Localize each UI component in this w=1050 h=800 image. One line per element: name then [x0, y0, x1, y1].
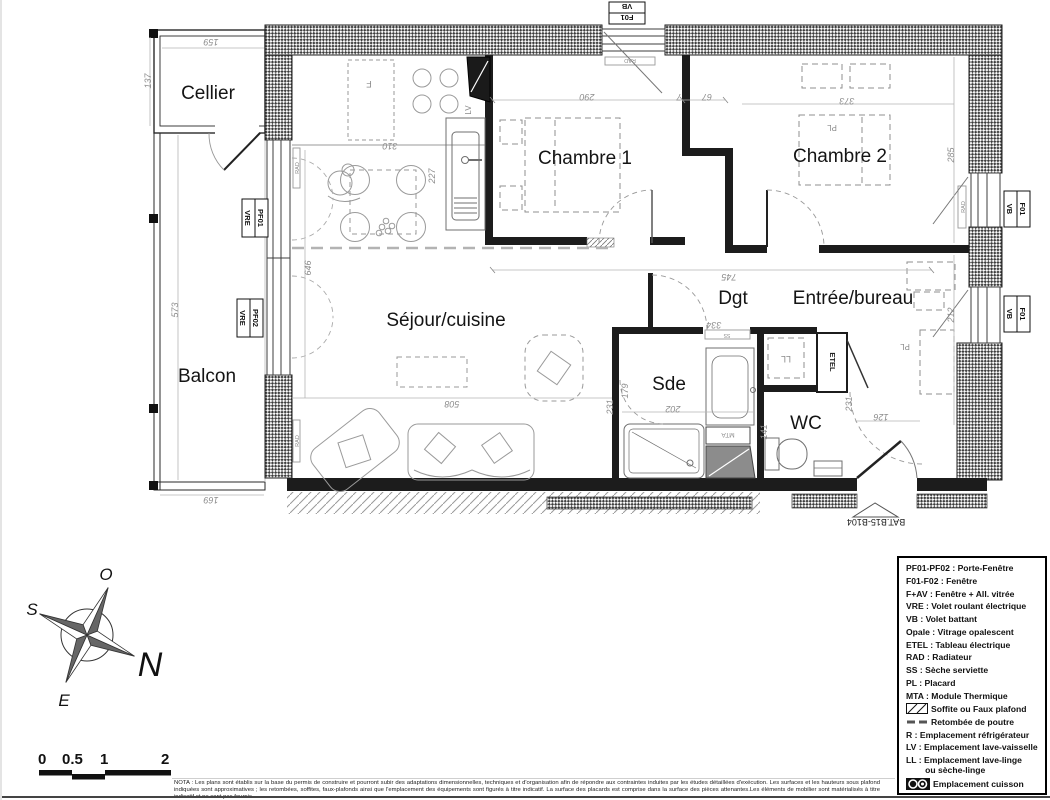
rad-label: RAD	[295, 435, 301, 447]
tag-text: F01	[621, 13, 634, 22]
scale-label-0: 0	[38, 751, 46, 768]
pf02-door-arcs	[292, 276, 333, 358]
dimension-label: 285	[946, 147, 956, 164]
tag-f01-vb-a: F01 VB	[1004, 191, 1030, 227]
dgt-door-arc	[652, 275, 707, 330]
dimension-label: 202	[665, 404, 681, 414]
legend-text: Opale : Vitrage opalescent	[906, 627, 1014, 637]
tag-pf02-vre: PF02 VRE	[237, 299, 263, 337]
room-label-sde: Sde	[652, 374, 686, 395]
cooktop-burner	[413, 69, 431, 87]
floor-plan-svg: 159 137 573 169 646 310 227 290 7 67 373…	[2, 0, 1050, 545]
legend-item: RAD : Radiateur	[906, 652, 1042, 662]
tag-text: PF02	[251, 309, 260, 327]
pillow	[482, 433, 513, 464]
dimension-label: 373	[839, 96, 854, 106]
toilet	[765, 438, 807, 470]
legend-text: Retombée de poutre	[931, 717, 1014, 727]
bottom-border	[2, 796, 1050, 798]
dimension-label: 231	[605, 399, 615, 415]
nightstand	[500, 120, 522, 144]
legend-item: LV : Emplacement lave-vaisselle	[906, 742, 1042, 752]
compass-south-label: S	[26, 600, 38, 619]
legend-item: ETEL : Tableau électrique	[906, 640, 1042, 650]
legend-item: LL : Emplacement lave-linge ou sèche-lin…	[906, 755, 1042, 775]
cellier-door-arc	[209, 133, 224, 170]
tag-text: VRE	[238, 310, 247, 325]
dimension-label: 141	[759, 424, 769, 439]
interior-walls	[287, 55, 987, 491]
legend-item: MTA : Module Thermique	[906, 691, 1042, 701]
cooktop-burner	[440, 95, 458, 113]
chair	[397, 213, 426, 242]
chair	[397, 166, 426, 195]
dimension-label: 179	[620, 383, 630, 398]
legend-item: Soffite ou Faux plafond	[906, 703, 1042, 714]
desk-chair	[914, 292, 944, 310]
compass-east-label: E	[58, 691, 70, 710]
legend-item: Retombée de poutre	[906, 717, 1042, 727]
floor-plan: 159 137 573 169 646 310 227 290 7 67 373…	[2, 0, 1050, 545]
legend-text: ETEL : Tableau électrique	[906, 640, 1010, 650]
dimension-label: 212	[946, 307, 956, 323]
chambre1-door-arc	[599, 190, 652, 243]
column-mark	[149, 481, 158, 490]
divider	[172, 778, 895, 779]
cellier-door-leaf	[224, 133, 260, 170]
tag-f01-vb-b: F01 VB	[1004, 296, 1030, 332]
dimension-label: 290	[579, 92, 595, 102]
room-label-dgt: Dgt	[718, 288, 748, 309]
windows	[267, 29, 1000, 375]
compass-star	[40, 588, 135, 683]
living-furniture	[306, 335, 583, 496]
dimension-label: 67	[701, 92, 712, 102]
tag-text: PF01	[256, 209, 265, 227]
room-label-chambre2: Chambre 2	[793, 146, 887, 167]
room-label-sejour: Séjour/cuisine	[386, 310, 505, 331]
legend-text: LL : Emplacement lave-linge ou sèche-lin…	[906, 755, 1022, 775]
legend-item: SS : Sèche serviette	[906, 665, 1042, 675]
tag-pf01-vre: PF01 VRE	[242, 199, 268, 237]
nightstand	[500, 186, 522, 210]
tag-top-vb-f01: VB F01	[609, 2, 645, 24]
pillow	[537, 351, 570, 384]
legend-item: PL : Placard	[906, 678, 1042, 688]
closet	[802, 64, 842, 88]
legend: PF01-PF02 : Porte-Fenêtre F01-F02 : Fenê…	[897, 556, 1047, 795]
soffit-hatch-icon	[906, 703, 928, 714]
shower	[624, 424, 704, 478]
dimension-label: 137	[143, 73, 153, 89]
radiators	[293, 57, 966, 462]
scale-label-2: 2	[161, 751, 169, 768]
exterior-ground	[287, 492, 987, 517]
dimension-label: 508	[444, 399, 459, 409]
room-label-balcon: Balcon	[178, 366, 236, 387]
page: 159 137 573 169 646 310 227 290 7 67 373…	[0, 0, 1050, 800]
rad-label: RAD	[624, 57, 636, 63]
tag-text: VRE	[243, 210, 252, 225]
beam-dash-icon	[906, 718, 928, 726]
room-label-entree: Entrée/bureau	[793, 288, 913, 309]
etel-label: ETEL	[828, 352, 837, 372]
scale-label-05: 0.5	[62, 751, 83, 768]
closet	[850, 64, 890, 88]
dimension-label: 7	[676, 92, 682, 102]
legend-item: VRE : Volet roulant électrique	[906, 601, 1042, 611]
dimension-label: 646	[303, 260, 313, 275]
scale-bar-svg: 0 0.5 1 2	[14, 742, 189, 792]
tag-text: VB	[1005, 204, 1014, 215]
building-ref: BAT.B15-B104	[847, 517, 905, 527]
column-mark	[149, 29, 158, 38]
legend-text: LV : Emplacement lave-vaisselle	[906, 742, 1038, 752]
legend-text: F01-F02 : Fenêtre	[906, 576, 977, 586]
legend-text: VRE : Volet roulant électrique	[906, 601, 1026, 611]
room-label-chambre1: Chambre 1	[538, 148, 632, 169]
pillow	[425, 433, 456, 464]
compass-rose: O S E N	[17, 558, 187, 723]
compass-north-label: N	[138, 646, 163, 684]
pl-label: PL	[900, 342, 910, 351]
legend-item: Emplacement cuisson	[906, 778, 1042, 790]
room-label-wc: WC	[790, 413, 822, 434]
desk	[907, 262, 955, 290]
legend-item: R : Emplacement réfrigérateur	[906, 730, 1042, 740]
dimension-label: 126	[873, 412, 888, 422]
window-pf01	[267, 140, 290, 258]
etel-door-leaf	[847, 340, 868, 388]
rad-label: RAD	[295, 162, 301, 174]
legend-text: F+AV : Fenêtre + All. vitrée	[906, 589, 1014, 599]
dimension-label: 227	[427, 168, 437, 185]
chambre2-door-arc	[767, 190, 824, 247]
legend-item: F+AV : Fenêtre + All. vitrée	[906, 589, 1042, 599]
dimension-label: 159	[203, 37, 218, 47]
dimension-label: 231	[844, 396, 854, 412]
mta-label: MTA	[721, 431, 735, 438]
column-mark	[149, 404, 158, 413]
scale-bar: 0 0.5 1 2	[14, 742, 189, 792]
legend-item: PF01-PF02 : Porte-Fenêtre	[906, 563, 1042, 573]
window-right-f01-a	[971, 173, 1000, 227]
dimension-label: 573	[170, 302, 180, 317]
dimension-label: 745	[721, 272, 737, 282]
legend-item: Opale : Vitrage opalescent	[906, 627, 1042, 637]
person-figure	[328, 164, 360, 202]
cooktop-burner	[440, 69, 458, 87]
tag-text: VB	[1005, 309, 1014, 320]
legend-text: PF01-PF02 : Porte-Fenêtre	[906, 563, 1013, 573]
pl-label: PL	[827, 123, 837, 132]
legend-text: Emplacement cuisson	[933, 779, 1024, 789]
chair	[341, 213, 370, 242]
ss-label: SS	[723, 332, 730, 338]
window-pf02	[267, 258, 290, 375]
armchair-pouf	[525, 335, 583, 401]
rad-label: RAD	[961, 201, 967, 213]
tag-text: F01	[1018, 203, 1027, 216]
plant-decor	[376, 218, 395, 236]
lv-label: LV	[464, 105, 473, 115]
window-right-f01-b	[971, 287, 1000, 343]
scale-segment	[105, 770, 171, 776]
compass-svg: O S E N	[17, 558, 187, 723]
fridge-label: F	[366, 79, 372, 89]
scale-segment	[72, 774, 105, 780]
closet-pl	[920, 330, 954, 394]
dimension-label: 169	[203, 495, 218, 505]
door-threshold	[587, 238, 614, 247]
dimension-label: 334	[706, 320, 721, 330]
tag-text: VB	[621, 2, 632, 11]
entry-arrow	[853, 503, 898, 517]
legend-text: Soffite ou Faux plafond	[931, 704, 1026, 714]
tag-text: F01	[1018, 308, 1027, 321]
coffee-table	[397, 357, 467, 387]
dining-furniture	[328, 164, 426, 242]
kitchen-sink	[446, 118, 485, 230]
legend-text: VB : Volet battant	[906, 614, 977, 624]
cooktop-icon	[906, 778, 930, 790]
doors	[292, 32, 968, 478]
legend-item: F01-F02 : Fenêtre	[906, 576, 1042, 586]
scale-label-1: 1	[100, 751, 108, 768]
legend-text: SS : Sèche serviette	[906, 665, 988, 675]
towel-radiator	[814, 461, 842, 476]
entry-door-leaf	[857, 441, 901, 478]
legend-text: MTA : Module Thermique	[906, 691, 1008, 701]
cooktop-burner	[413, 95, 431, 113]
fridge-slot	[348, 60, 394, 140]
scale-segment	[39, 770, 72, 776]
room-label-cellier: Cellier	[181, 83, 236, 104]
ll-label: LL	[781, 354, 791, 364]
legend-text: R : Emplacement réfrigérateur	[906, 730, 1029, 740]
compass-west-label: O	[99, 565, 112, 584]
entry-door-arc	[901, 441, 917, 478]
legend-text: RAD : Radiateur	[906, 652, 972, 662]
dimension-label: 310	[382, 141, 397, 151]
washbasin	[706, 348, 756, 425]
legend-item: VB : Volet battant	[906, 614, 1042, 624]
column-mark	[149, 214, 158, 223]
legend-text: PL : Placard	[906, 678, 956, 688]
